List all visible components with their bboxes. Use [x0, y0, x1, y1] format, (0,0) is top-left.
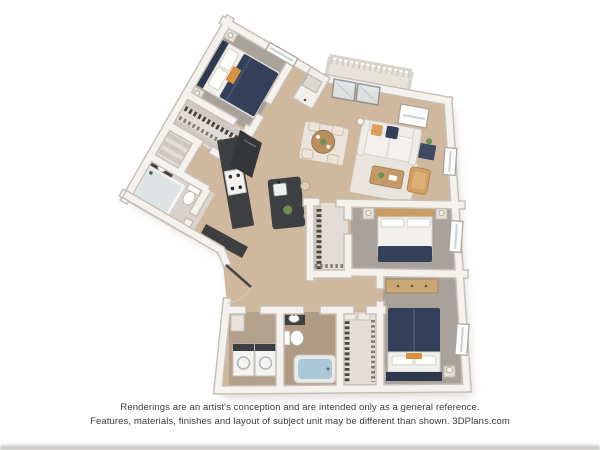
dining-chair	[301, 148, 313, 159]
island-sink	[273, 183, 287, 196]
lamp	[439, 211, 444, 216]
lamp	[366, 211, 371, 216]
dining-chair	[332, 125, 344, 136]
floorplan-page: Renderings are an artist's conception an…	[0, 0, 600, 450]
page-bottom-edge	[0, 443, 600, 450]
window-living	[443, 148, 457, 176]
door-handle	[304, 99, 307, 102]
window-bedroom-3	[455, 324, 469, 356]
bathtub	[294, 355, 336, 383]
pillow	[370, 124, 383, 137]
dining-chair	[327, 154, 339, 165]
toilet	[284, 331, 304, 346]
pillow	[407, 219, 430, 227]
shelf	[231, 315, 244, 331]
headboard	[386, 372, 442, 381]
dryer	[255, 344, 276, 376]
dining-area	[299, 120, 349, 165]
disclaimer-line-1: Renderings are an artist's conception an…	[0, 401, 600, 415]
window-bedroom-2	[449, 221, 463, 253]
armchair	[407, 167, 431, 195]
disclaimer: Renderings are an artist's conception an…	[0, 401, 600, 428]
pillow	[381, 219, 404, 227]
stool	[300, 181, 310, 191]
pillow	[385, 125, 399, 139]
headboard	[376, 208, 434, 217]
floorplan-rendering	[0, 0, 600, 450]
sink	[289, 315, 299, 323]
lumbar-pillow	[406, 353, 422, 359]
drain	[327, 368, 330, 371]
window-top	[398, 104, 429, 128]
lamp	[447, 367, 453, 373]
disclaimer-line-2: Features, materials, finishes and layout…	[0, 415, 600, 429]
dining-chair	[308, 121, 320, 132]
duvet	[378, 246, 432, 262]
washer	[233, 344, 254, 376]
